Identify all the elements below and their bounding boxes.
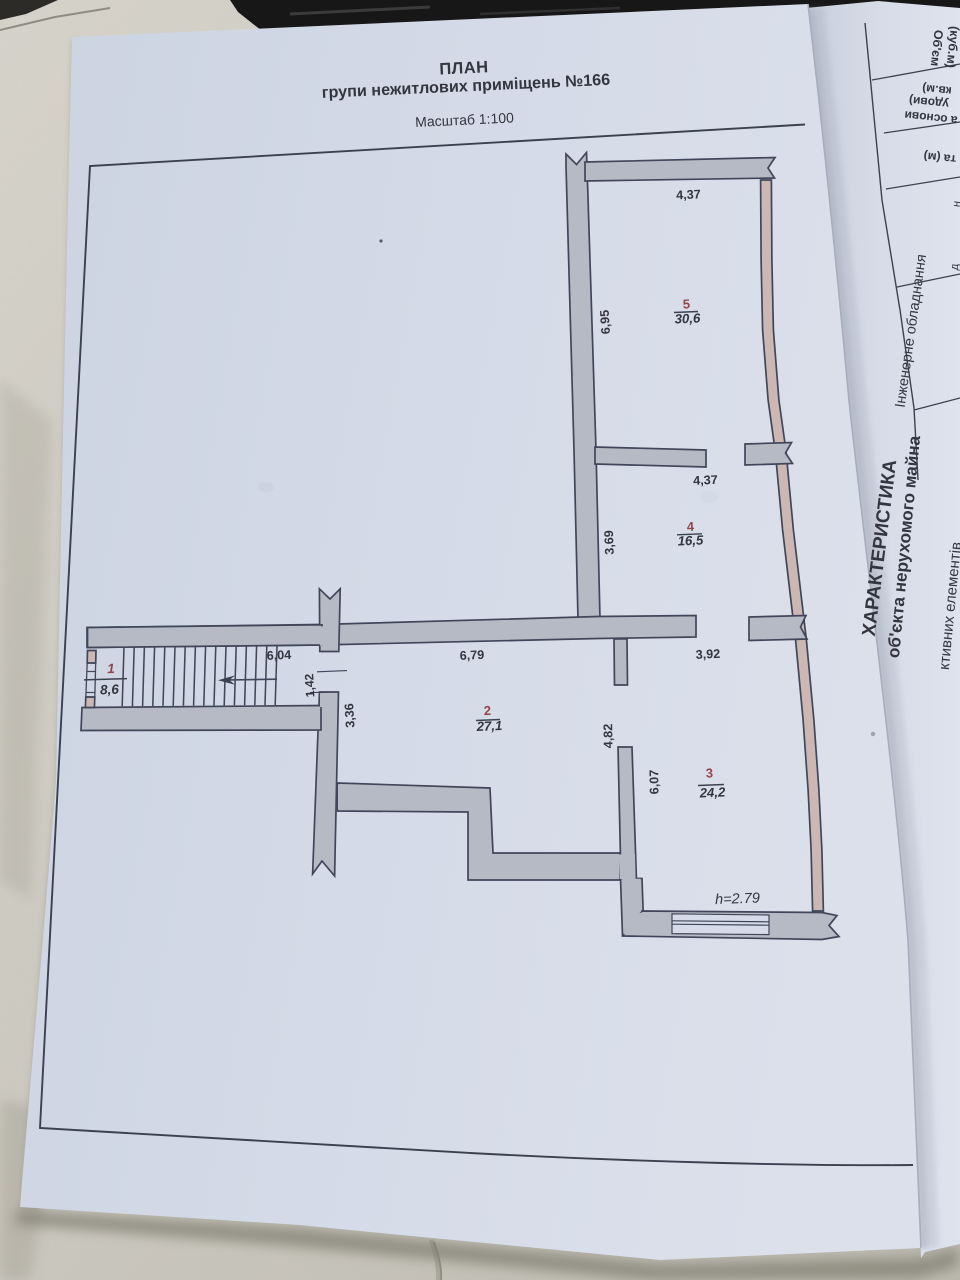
svg-text:4,37: 4,37 bbox=[693, 473, 718, 488]
svg-text:h=2.79: h=2.79 bbox=[715, 890, 760, 908]
svg-text:2: 2 bbox=[484, 703, 492, 718]
svg-text:6,95: 6,95 bbox=[598, 309, 613, 334]
svg-text:3: 3 bbox=[706, 765, 714, 780]
svg-text:4,37: 4,37 bbox=[676, 187, 701, 202]
svg-text:6,07: 6,07 bbox=[647, 770, 661, 795]
svg-text:3,69: 3,69 bbox=[602, 530, 617, 555]
svg-text:1,42: 1,42 bbox=[302, 673, 317, 698]
svg-text:16,5: 16,5 bbox=[677, 532, 704, 548]
svg-text:3,36: 3,36 bbox=[342, 703, 357, 728]
svg-text:1: 1 bbox=[107, 661, 115, 676]
svg-text:5: 5 bbox=[683, 296, 691, 311]
svg-text:6,79: 6,79 bbox=[459, 648, 484, 663]
svg-text:4,82: 4,82 bbox=[601, 724, 615, 749]
svg-text:6,04: 6,04 bbox=[266, 648, 291, 663]
svg-text:ПЛАН: ПЛАН bbox=[439, 58, 489, 78]
svg-text:24,2: 24,2 bbox=[698, 784, 726, 800]
svg-text:н: н bbox=[951, 200, 960, 207]
svg-text:30,6: 30,6 bbox=[674, 310, 701, 326]
svg-text:27,1: 27,1 bbox=[475, 718, 502, 734]
svg-text:8,6: 8,6 bbox=[100, 682, 120, 698]
svg-text:3,92: 3,92 bbox=[695, 647, 720, 662]
svg-text:4: 4 bbox=[687, 519, 696, 534]
